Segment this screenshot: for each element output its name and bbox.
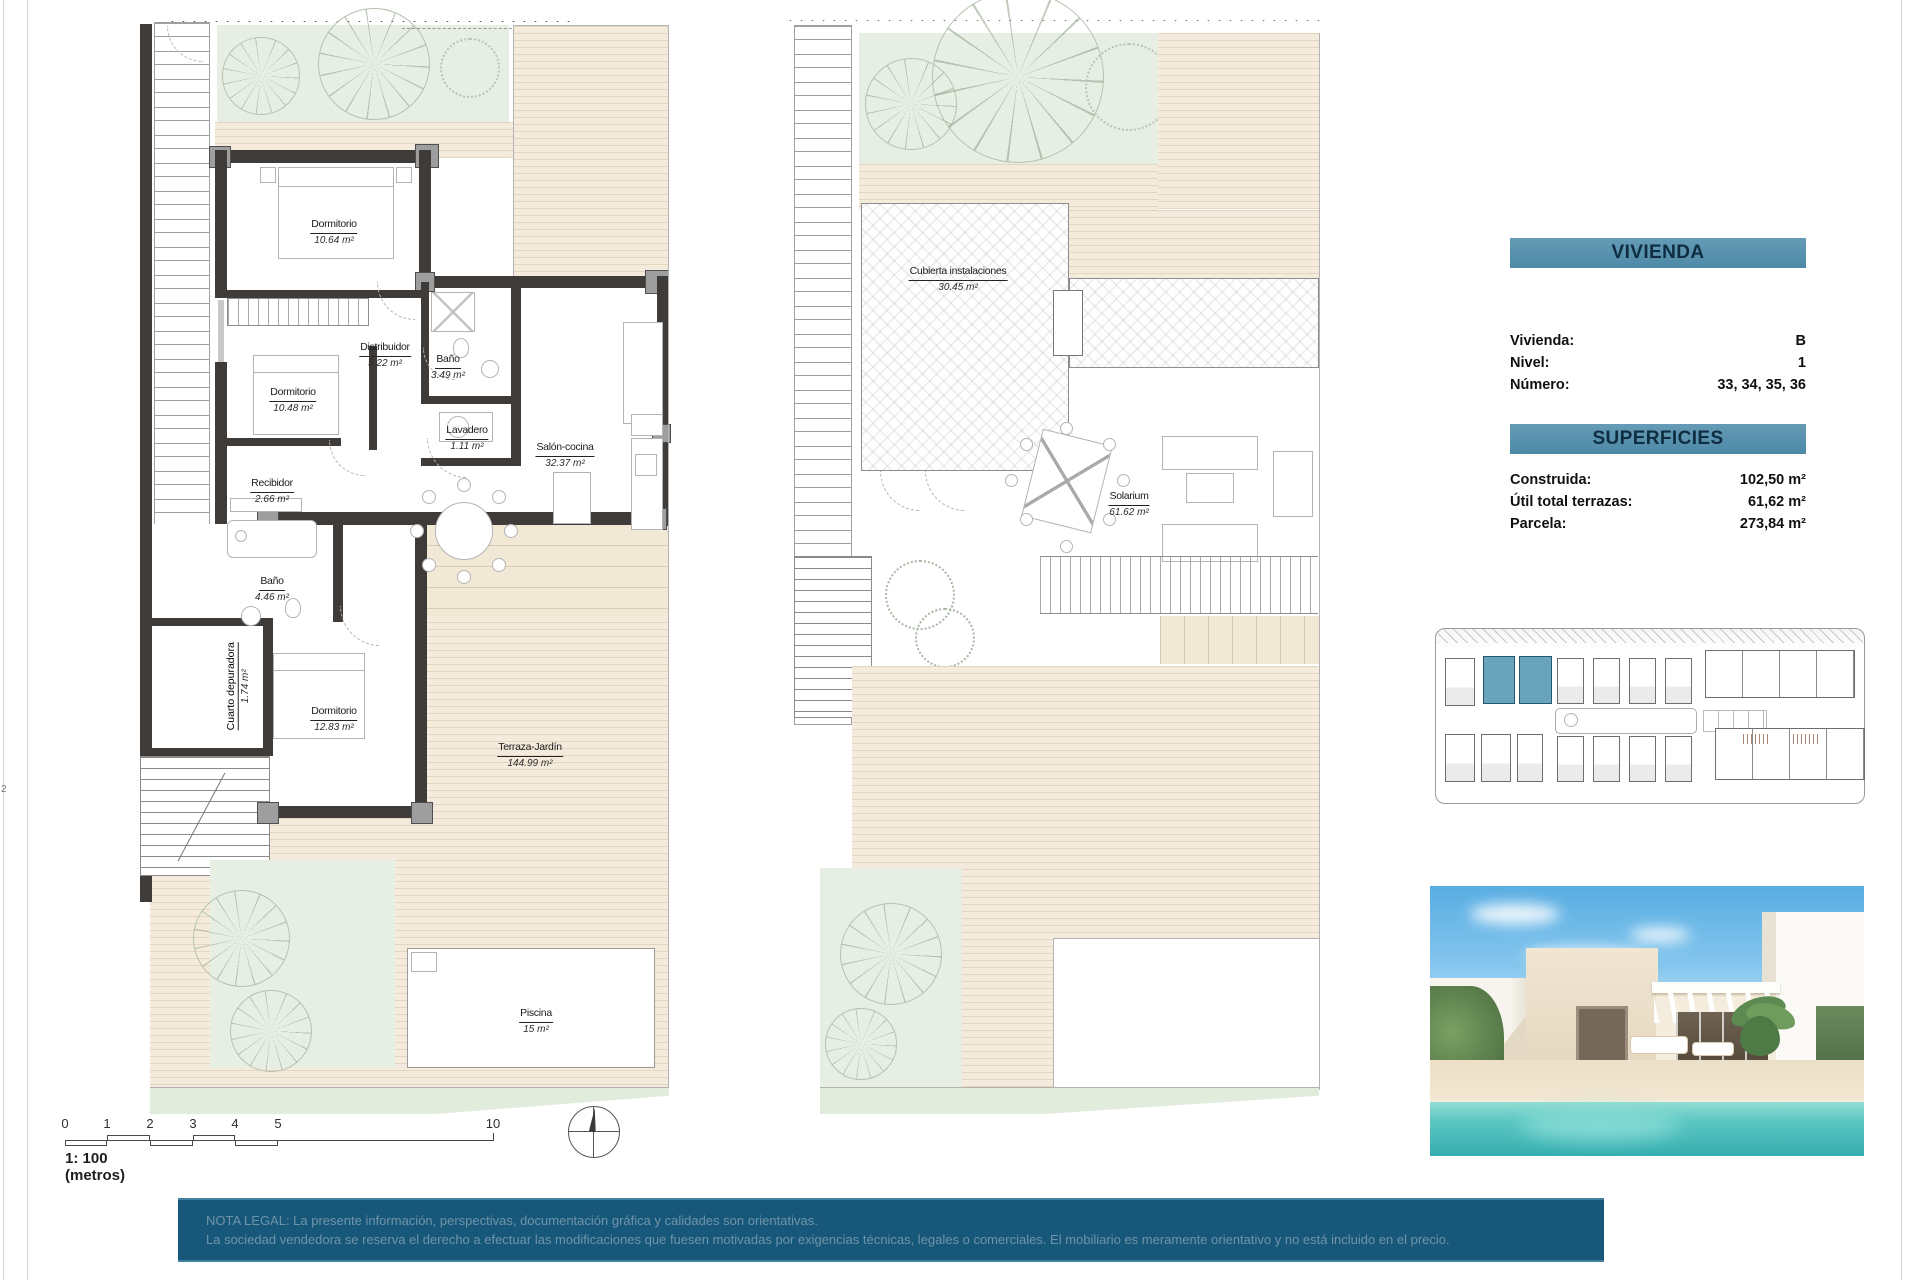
- wall: [263, 618, 273, 754]
- plot-boundary: [1319, 33, 1320, 1090]
- plot-boundary: [820, 1087, 1319, 1088]
- north-arrow-icon: [568, 1106, 620, 1158]
- scale-segment: [150, 1140, 193, 1146]
- wall: [511, 282, 521, 466]
- plant-icon: [915, 608, 975, 668]
- scale-tick: 10: [486, 1116, 500, 1131]
- room-label: Salón-cocina32.37 m²: [535, 436, 594, 470]
- photo-pergola-beam: [1652, 982, 1780, 993]
- site-plan-thumbnail: [1433, 616, 1895, 814]
- window: [218, 300, 224, 362]
- site-unit: [1445, 658, 1475, 706]
- roof-deck: [1069, 210, 1319, 278]
- fridge: [631, 414, 663, 436]
- wall: [421, 282, 429, 404]
- pool-steps: [411, 952, 437, 972]
- chair: [1005, 474, 1018, 487]
- info-label: Vivienda:: [1510, 333, 1574, 349]
- info-value: 102,50 m²: [1740, 472, 1806, 488]
- sink: [241, 606, 261, 626]
- info-row: Construida: 102,50 m²: [1510, 472, 1806, 488]
- wardrobe: [227, 298, 369, 326]
- coffee-table: [1186, 473, 1234, 503]
- scale-end-tick: [493, 1133, 494, 1141]
- tree-icon: [193, 890, 290, 987]
- photo-lounge-chair: [1692, 1042, 1734, 1056]
- photo-pool: [1430, 1102, 1864, 1156]
- room-label: Cuarto depuradora1.74 m²: [220, 631, 253, 741]
- nightstand: [260, 167, 276, 183]
- site-unit: [1557, 658, 1584, 704]
- site-unit: [1629, 658, 1656, 704]
- chair: [1103, 438, 1116, 451]
- scale-label: 1: 100 (metros): [65, 1150, 125, 1184]
- info-row: Vivienda: B: [1510, 333, 1806, 349]
- site-unit-highlighted: [1483, 656, 1515, 704]
- site-courtyard: [1555, 708, 1697, 734]
- info-row: Parcela: 273,84 m²: [1510, 516, 1806, 532]
- tree-icon: [825, 1008, 897, 1080]
- tree-icon: [440, 38, 500, 98]
- chair: [1060, 422, 1073, 435]
- chair: [492, 490, 506, 504]
- info-label: Construida:: [1510, 472, 1591, 488]
- bed-pillows: [273, 653, 365, 671]
- cloud: [1470, 904, 1560, 924]
- chair: [492, 558, 506, 572]
- scale-tick: 2: [146, 1116, 153, 1131]
- chair: [457, 570, 471, 584]
- nightstand: [396, 167, 412, 183]
- hob: [635, 454, 657, 476]
- site-apartment-block: [1705, 650, 1855, 698]
- sofa: [1162, 436, 1258, 470]
- tree-icon: [318, 8, 430, 120]
- room-label: Solarium61.62 m²: [1108, 485, 1149, 519]
- site-pool-icon: [1564, 713, 1578, 727]
- wall: [215, 438, 341, 446]
- chair: [410, 524, 424, 538]
- solarium-floor-plan: Cubierta instalaciones30.45 m² Solarium6…: [785, 8, 1325, 1112]
- photo-terrace: [1430, 1060, 1864, 1104]
- room-label: Piscina15 m²: [519, 1002, 553, 1036]
- info-row: Nivel: 1: [1510, 355, 1806, 371]
- chair: [422, 558, 436, 572]
- staircase: [140, 756, 270, 876]
- tree-icon: [222, 37, 300, 115]
- plan-sheet: 2: [0, 0, 1920, 1280]
- scale-tick: 3: [189, 1116, 196, 1131]
- room-label: Dormitorio12.83 m²: [310, 700, 357, 734]
- wall: [140, 748, 273, 756]
- page-border-line: [1901, 0, 1902, 1280]
- plot-boundary: [150, 1087, 669, 1088]
- scale-tick: 5: [274, 1116, 281, 1131]
- installations-roof: [861, 203, 1069, 471]
- room-label: Cubierta instalaciones30.45 m²: [909, 260, 1008, 294]
- chair: [422, 490, 436, 504]
- pergola-planks: [1160, 616, 1319, 664]
- ground-floor-plan: Dormitorio10.64 m² Distribuidor5.22 m² B…: [115, 8, 685, 1112]
- site-detail-hatch: [1793, 734, 1819, 744]
- site-unit-highlighted: [1519, 656, 1552, 704]
- legal-note-line1: NOTA LEGAL: La presente información, per…: [206, 1213, 1604, 1228]
- chair: [1020, 513, 1033, 526]
- bathtub-drain: [235, 530, 247, 542]
- room-label: Lavadero1.11 m²: [445, 419, 488, 453]
- info-label: Parcela:: [1510, 516, 1566, 532]
- cloud: [1630, 928, 1690, 942]
- sofa: [623, 322, 663, 424]
- site-unit: [1445, 734, 1475, 782]
- edge-mark: 2: [1, 784, 7, 795]
- site-hatch-edge: [1437, 629, 1863, 643]
- palm-plant: [1740, 1016, 1780, 1056]
- info-label: Útil total terrazas:: [1510, 494, 1632, 510]
- site-detail-hatch: [1743, 734, 1769, 744]
- site-unit: [1665, 658, 1692, 704]
- sink: [481, 360, 499, 378]
- installations-roof: [1069, 278, 1319, 368]
- info-label: Número:: [1510, 377, 1570, 393]
- dining-table: [435, 502, 493, 560]
- site-unit: [1665, 736, 1692, 782]
- chair: [457, 478, 471, 492]
- info-value: B: [1796, 333, 1806, 349]
- kitchen-island: [553, 472, 591, 524]
- info-value: 273,84 m²: [1740, 516, 1806, 532]
- scale-tick: 0: [61, 1116, 68, 1131]
- roof-deck: [1158, 33, 1319, 209]
- scale-tick: 1: [103, 1116, 110, 1131]
- door-swing-arc: [880, 471, 920, 511]
- info-row: Útil total terrazas: 61,62 m²: [1510, 494, 1806, 510]
- site-unit: [1557, 736, 1584, 782]
- photo-lounge-sofa: [1630, 1036, 1688, 1054]
- site-apartment-block: [1715, 728, 1865, 780]
- vivienda-header: VIVIENDA: [1510, 238, 1806, 268]
- scale-segment: [193, 1135, 235, 1141]
- site-unit: [1481, 734, 1511, 782]
- kitchen-counter: [631, 438, 663, 530]
- chair: [1020, 438, 1033, 451]
- site-unit: [1593, 736, 1620, 782]
- info-value: 33, 34, 35, 36: [1717, 377, 1806, 393]
- wall-pad: [257, 802, 279, 824]
- site-unit: [1593, 658, 1620, 704]
- wall-pad: [411, 802, 433, 824]
- photo-pool-glint: [1520, 1110, 1680, 1140]
- scale-segment: [107, 1135, 150, 1141]
- page-fold-line: [3, 0, 4, 1280]
- door-swing-arc: [925, 471, 965, 511]
- villa-photo: [1430, 886, 1864, 1156]
- legal-note-line2: La sociedad vendedora se reserva el dere…: [206, 1232, 1604, 1247]
- room-label: Baño4.46 m²: [255, 570, 289, 604]
- superficies-header: SUPERFICIES: [1510, 424, 1806, 454]
- bed-pillows: [278, 167, 394, 187]
- wall: [215, 150, 431, 163]
- info-value: 61,62 m²: [1748, 494, 1806, 510]
- photo-villa-door: [1576, 1006, 1628, 1064]
- shower-tray: [431, 292, 475, 332]
- scale-segment: [65, 1140, 107, 1146]
- wall: [419, 276, 669, 288]
- room-label: Baño3.49 m²: [431, 348, 465, 382]
- chair: [504, 524, 518, 538]
- room-label: Recibidor2.66 m²: [250, 472, 294, 506]
- legal-note-bar: NOTA LEGAL: La presente información, per…: [178, 1198, 1604, 1262]
- room-label: Distribuidor5.22 m²: [359, 336, 411, 370]
- page-fold-line: [27, 0, 28, 1280]
- site-unit: [1517, 734, 1543, 782]
- armchair: [1273, 451, 1313, 517]
- chair: [1060, 540, 1073, 553]
- room-label: Dormitorio10.64 m²: [310, 213, 357, 247]
- tree-icon: [230, 990, 312, 1072]
- stair-guide-line: [178, 773, 226, 862]
- roof-hatch: [1053, 290, 1083, 356]
- info-value: 1: [1798, 355, 1806, 371]
- bed-pillows: [253, 355, 339, 373]
- door-swing-arc: [329, 440, 365, 476]
- door-swing-arc: [377, 282, 415, 320]
- wall: [421, 396, 519, 404]
- entry-deck: [513, 25, 669, 287]
- pool-area-below: [1053, 938, 1320, 1091]
- scale-tick: 4: [231, 1116, 238, 1131]
- wall: [419, 150, 431, 282]
- info-label: Nivel:: [1510, 355, 1550, 371]
- wall: [215, 150, 227, 298]
- room-label: Terraza-Jardín144.99 m²: [497, 736, 563, 770]
- site-unit: [1629, 736, 1656, 782]
- tree-icon: [840, 903, 942, 1005]
- info-row: Número: 33, 34, 35, 36: [1510, 377, 1806, 393]
- plot-boundary: [668, 25, 669, 1088]
- scale-segment: [235, 1140, 278, 1146]
- wall: [263, 806, 427, 818]
- boundary-dashed-line: [402, 28, 512, 29]
- railing: [1040, 556, 1318, 614]
- room-label: Dormitorio10.48 m²: [269, 381, 316, 415]
- garden-strip: [820, 1088, 1319, 1114]
